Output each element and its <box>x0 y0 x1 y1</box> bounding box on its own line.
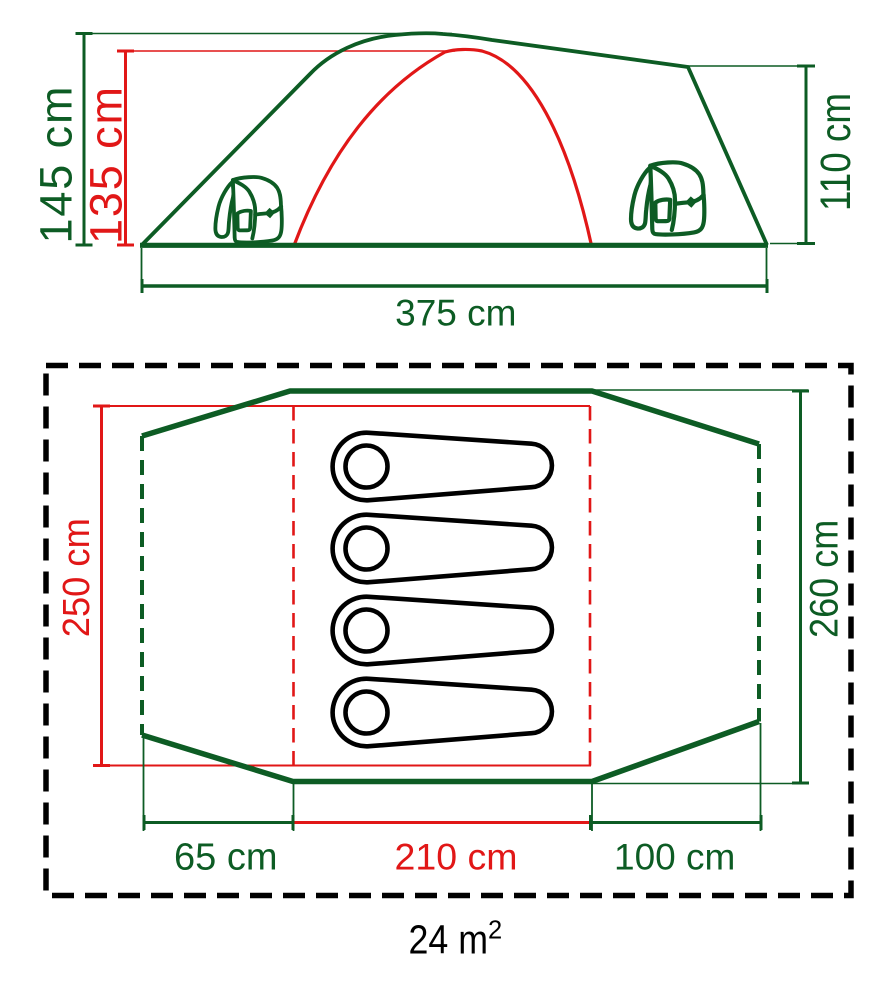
svg-text:375 cm: 375 cm <box>395 292 516 333</box>
svg-text:65 cm: 65 cm <box>174 837 277 879</box>
svg-text:260 cm: 260 cm <box>803 520 847 638</box>
svg-text:2: 2 <box>488 917 502 945</box>
svg-text:100 cm: 100 cm <box>614 837 735 878</box>
svg-text:135 cm: 135 cm <box>81 87 132 244</box>
svg-text:110 cm: 110 cm <box>813 93 860 211</box>
svg-text:210 cm: 210 cm <box>395 836 518 878</box>
svg-text:145 cm: 145 cm <box>31 87 82 244</box>
svg-text:24 m: 24 m <box>409 916 489 962</box>
svg-text:250 cm: 250 cm <box>56 518 98 637</box>
